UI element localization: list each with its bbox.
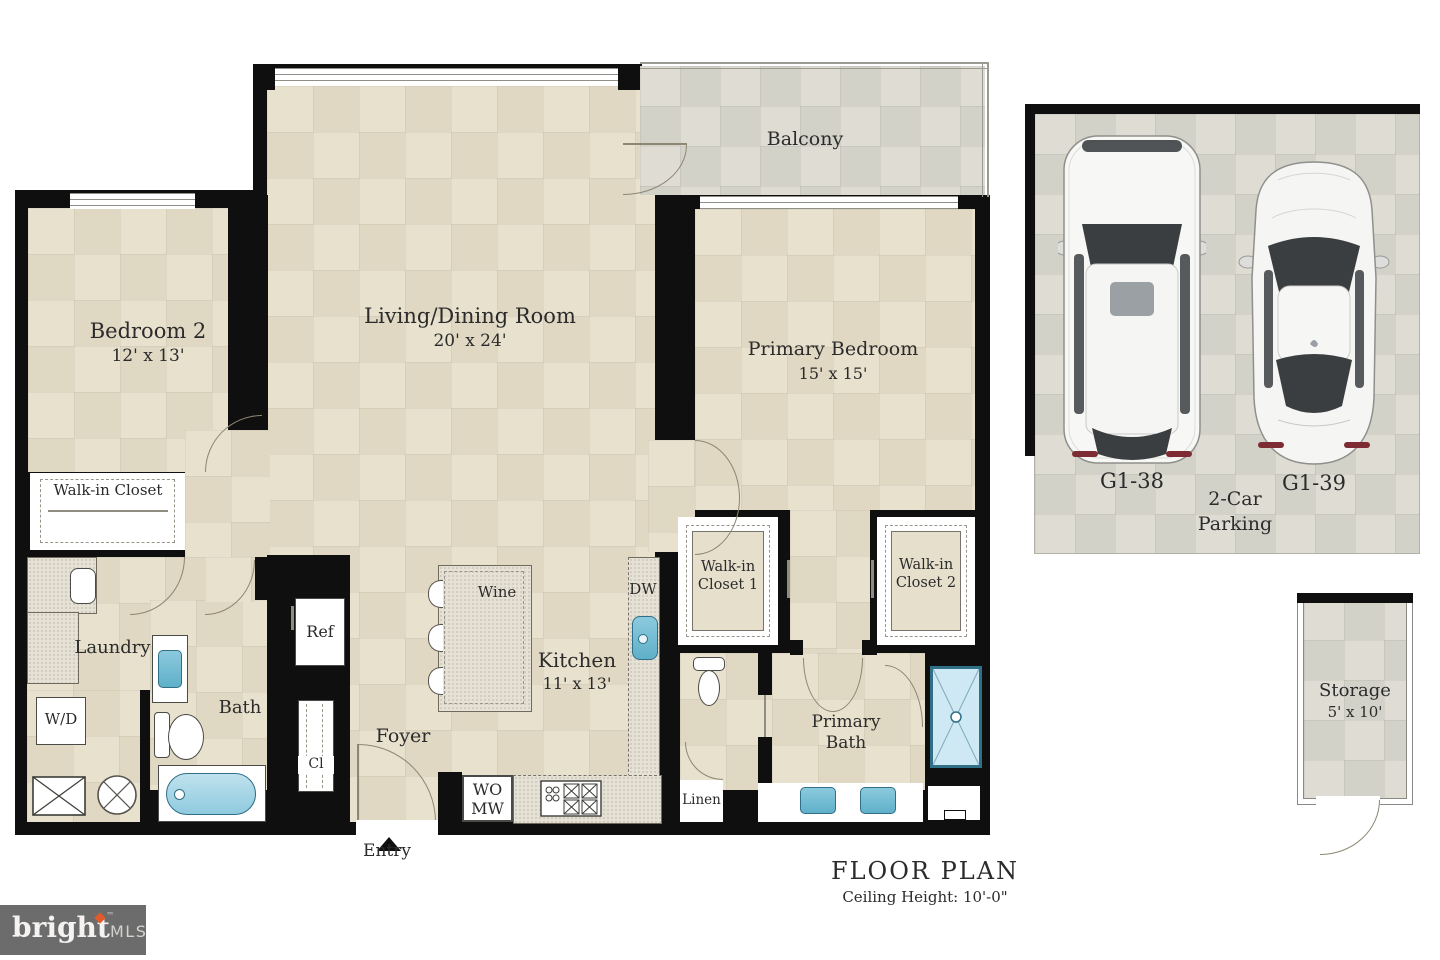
storage-dims: 5' x 10': [1303, 703, 1407, 722]
primary-bedroom-window: [700, 196, 958, 209]
laundry-sink: [70, 568, 96, 604]
wc-toilet-tank: [693, 657, 725, 671]
dw-label: DW: [626, 580, 660, 599]
balcony-door-leaf: [623, 143, 687, 145]
parking-caption: 2-Car Parking: [1189, 487, 1281, 536]
parking-stall1-label: G1-38: [1072, 468, 1192, 494]
primary-bedroom-label: Primary Bedroom: [693, 338, 973, 362]
wic2-rod-tick: [871, 560, 874, 598]
wic1-label: Walk-in Closet 1: [683, 558, 773, 594]
suv-car-icon: [1058, 132, 1206, 467]
shower-step-notch: [944, 810, 966, 820]
walkin-closet-label: Walk-in Closet: [52, 481, 164, 500]
living-label: Living/Dining Room: [330, 303, 610, 329]
wall-bedroom2-east: [250, 267, 268, 430]
entry-label: Entry: [342, 841, 432, 862]
storage-wall-top: [1297, 593, 1413, 603]
wine-label: Wine: [466, 583, 528, 602]
kitchen-dims: 11' x 13': [517, 674, 637, 694]
primary-sink-2: [860, 787, 896, 814]
plan-title: FLOOR PLAN: [780, 856, 1070, 886]
logo-tm: ™: [106, 911, 114, 920]
wc-toilet-bowl: [698, 670, 720, 706]
bathtub-drain: [174, 789, 185, 800]
cl-closet-dash: [306, 704, 307, 788]
entry-door-leaf: [357, 744, 359, 822]
kitchen-faucet: [638, 634, 648, 644]
balcony-railing-right-outer: [987, 62, 989, 197]
hatch-cabinet-icon: [32, 776, 86, 816]
wic1-rod-tick: [787, 560, 790, 598]
primary-bath-label: Primary Bath: [800, 712, 892, 755]
ref-handle: [291, 606, 294, 630]
walkin-closet-rod: [48, 510, 168, 512]
cl-closet-box: [298, 700, 334, 792]
logo-suffix: MLS: [110, 922, 147, 941]
wall-womw-side: [438, 772, 462, 822]
cl-label: Cl: [298, 756, 334, 774]
primary-hall-floor: [790, 510, 870, 655]
primary-bedroom-dims: 15' x 15': [693, 364, 973, 384]
floor-drain-icon: [96, 774, 138, 816]
sedan-car-icon: [1238, 158, 1390, 468]
balcony-railing-top-outer: [640, 62, 989, 64]
wall-bedroom2-corner: [228, 195, 268, 267]
window-post-west: [253, 66, 275, 90]
storage-door-arc: [1320, 800, 1380, 855]
primary-sink-1: [800, 787, 836, 814]
stove-icon: [540, 780, 602, 817]
wd-label: W/D: [36, 710, 86, 729]
shower-icon: [930, 666, 982, 768]
balcony-label: Balcony: [730, 128, 880, 152]
living-dims: 20' x 24': [330, 331, 610, 352]
wall-hall-stub-right: [862, 640, 877, 655]
bedroom2-dims: 12' x 13': [48, 346, 248, 367]
kitchen-label: Kitchen: [517, 648, 637, 673]
linen-label: Linen: [678, 792, 725, 809]
entry-gap: [356, 820, 438, 837]
bedroom2-window: [70, 193, 195, 209]
wall-wc-partition-lower: [758, 737, 772, 783]
primary-vanity: [758, 783, 923, 822]
laundry-label: Laundry: [55, 637, 170, 660]
wc-door-leaf: [764, 695, 766, 737]
parking-wall-top: [1025, 104, 1420, 114]
storage-label: Storage: [1303, 680, 1407, 703]
wic2-label: Walk-in Closet 2: [882, 556, 970, 592]
living-window-wall: [273, 68, 620, 86]
balcony-railing-right-inner: [982, 62, 983, 197]
plan-subtitle: Ceiling Height: 10'-0": [780, 888, 1070, 907]
bedroom2-label: Bedroom 2: [48, 318, 248, 344]
brightmls-logo: bright ™ MLS: [0, 905, 146, 955]
balcony-railing-top-inner: [640, 68, 989, 69]
womw-label: WOMW: [462, 780, 513, 818]
wall-hall-stub-left: [790, 640, 803, 655]
bath-toilet-bowl: [168, 714, 204, 760]
floor-plan-page: Bedroom 2 12' x 13' Living/Dining Room 2…: [0, 0, 1440, 960]
ref-label: Ref: [295, 622, 345, 642]
bath-label: Bath: [208, 697, 272, 720]
parking-wall-left: [1025, 104, 1035, 456]
foyer-label: Foyer: [358, 725, 448, 749]
wall-wc-partition-upper: [758, 653, 772, 695]
cl-closet-dash2: [322, 704, 323, 788]
